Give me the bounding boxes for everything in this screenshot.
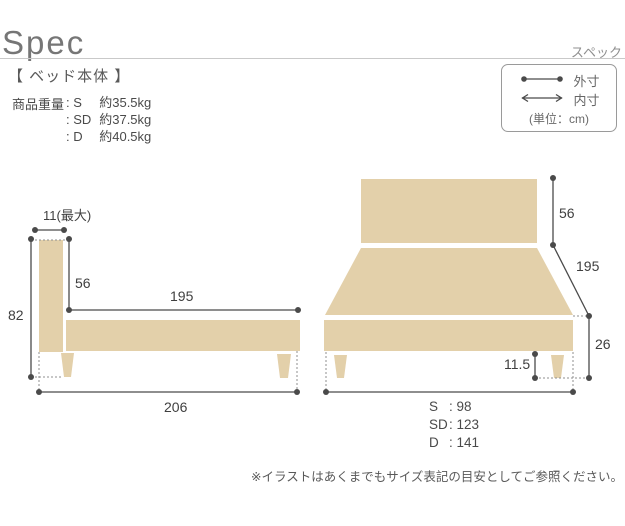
dim-front-depth: 195	[576, 258, 599, 274]
side-headboard	[39, 240, 63, 352]
side-leg-right	[277, 354, 291, 378]
side-view	[28, 227, 301, 395]
side-frame	[66, 320, 300, 351]
dim-total-height: 82	[8, 307, 24, 323]
dim-inner-length: 195	[170, 288, 193, 304]
width-row-sd: SD: 123	[429, 416, 479, 434]
width-row-d: D: 141	[429, 434, 479, 452]
front-view	[323, 175, 592, 395]
front-headboard	[361, 179, 537, 243]
width-size-list: S: 98 SD: 123 D: 141	[429, 398, 479, 452]
front-rail	[324, 320, 573, 351]
dim-front-leg-height: 11.5	[504, 356, 530, 372]
side-leg-left	[61, 353, 74, 377]
bed-diagrams	[0, 0, 625, 526]
front-mattress-deck	[325, 248, 573, 315]
front-leg-left	[334, 355, 347, 378]
dim-front-headboard-height: 56	[559, 205, 575, 221]
dim-headboard-above-frame: 56	[75, 275, 91, 291]
dim-front-frame-height: 26	[595, 336, 611, 352]
footnote: ※イラストはあくまでもサイズ表記の目安としてご参照ください。	[251, 466, 623, 485]
front-leg-right	[551, 355, 564, 378]
width-row-s: S: 98	[429, 398, 479, 416]
spec-sheet: Spec スペック 【 ベッド本体 】 商品重量 : S約35.5kg : SD…	[0, 0, 625, 526]
dim-headboard-thickness: 11(最大)	[43, 205, 91, 224]
dim-total-length: 206	[164, 399, 187, 415]
